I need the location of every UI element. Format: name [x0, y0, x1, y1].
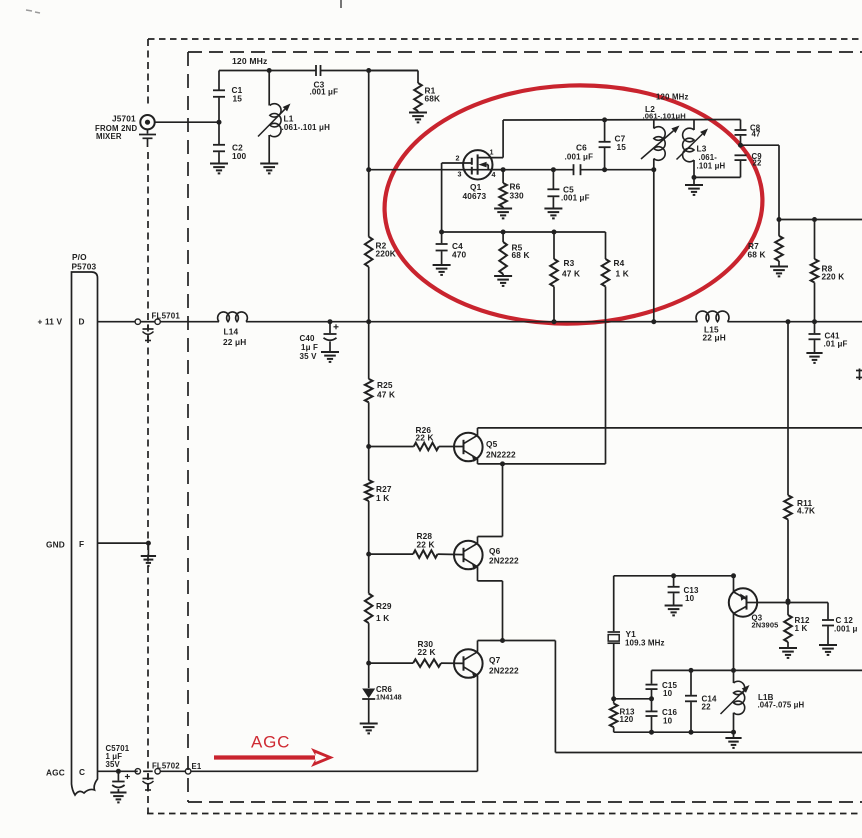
svg-text:C6: C6 — [576, 142, 587, 152]
svg-text:C: C — [79, 767, 85, 777]
svg-text:FL5701: FL5701 — [152, 311, 181, 320]
svg-text:.061-.101 μH: .061-.101 μH — [282, 123, 331, 132]
svg-text:22: 22 — [753, 159, 762, 168]
svg-text:68K: 68K — [425, 94, 441, 104]
svg-text:15: 15 — [617, 142, 627, 152]
svg-text:R3: R3 — [564, 258, 575, 268]
svg-text:L14: L14 — [224, 327, 239, 337]
svg-text:.001 μF: .001 μF — [310, 88, 339, 97]
svg-text:E1: E1 — [192, 762, 202, 771]
svg-text:22: 22 — [702, 702, 712, 711]
svg-text:47: 47 — [752, 130, 761, 139]
svg-text:120 MHz: 120 MHz — [656, 93, 689, 102]
svg-text:AGC: AGC — [251, 733, 290, 752]
svg-text:AGC: AGC — [46, 768, 65, 778]
svg-text:10: 10 — [663, 717, 673, 726]
svg-text:.001 μF: .001 μF — [561, 194, 590, 203]
svg-text:120: 120 — [620, 715, 634, 724]
svg-text:100: 100 — [232, 151, 247, 161]
svg-text:40673: 40673 — [463, 191, 487, 201]
svg-text:1: 1 — [490, 148, 494, 157]
svg-text:220 K: 220 K — [822, 271, 845, 281]
svg-text:F: F — [79, 539, 84, 549]
svg-text:68 K: 68 K — [512, 250, 530, 260]
svg-text:1 K: 1 K — [795, 624, 808, 633]
svg-text:22 μH: 22 μH — [703, 333, 726, 343]
svg-text:Q6: Q6 — [489, 546, 501, 556]
svg-text:2N2222: 2N2222 — [489, 666, 519, 676]
svg-text:.101 μH: .101 μH — [697, 162, 726, 171]
svg-text:L1: L1 — [284, 114, 294, 124]
svg-text:330: 330 — [510, 191, 525, 201]
svg-text:.01 μF: .01 μF — [824, 339, 848, 348]
svg-text:2N2222: 2N2222 — [489, 556, 519, 566]
svg-text:+ 11 V: + 11 V — [38, 316, 63, 326]
svg-text:R29: R29 — [376, 601, 392, 611]
svg-text:120 MHz: 120 MHz — [232, 56, 267, 66]
svg-text:15: 15 — [233, 94, 243, 104]
svg-text:J5701: J5701 — [112, 114, 136, 124]
svg-text:47 K: 47 K — [377, 390, 395, 400]
svg-text:35V: 35V — [106, 760, 121, 769]
svg-text:L3: L3 — [697, 144, 707, 154]
svg-text:.001 μF: .001 μF — [565, 153, 594, 162]
svg-text:Q7: Q7 — [489, 655, 501, 665]
svg-text:P5703: P5703 — [72, 261, 97, 271]
svg-text:Q5: Q5 — [486, 439, 498, 449]
svg-text:FL5702: FL5702 — [152, 761, 180, 770]
svg-text:2: 2 — [456, 154, 460, 163]
svg-text:220K: 220K — [376, 248, 396, 258]
svg-text:R25: R25 — [377, 380, 393, 390]
svg-text:22 K: 22 K — [416, 433, 434, 443]
svg-text:GND: GND — [46, 539, 65, 549]
svg-text:MIXER: MIXER — [96, 132, 122, 141]
svg-text:47 K: 47 K — [562, 269, 580, 279]
svg-text:4: 4 — [492, 170, 496, 179]
svg-text:.061-.101μH: .061-.101μH — [643, 112, 686, 121]
svg-text:1μ F: 1μ F — [301, 343, 318, 352]
svg-text:2N3905: 2N3905 — [752, 620, 779, 629]
svg-text:10: 10 — [663, 689, 673, 698]
svg-text:.001 μ: .001 μ — [834, 624, 858, 633]
svg-text:22 μH: 22 μH — [223, 337, 246, 347]
svg-text:10: 10 — [685, 594, 695, 603]
svg-text:R4: R4 — [614, 258, 625, 268]
svg-text:22 K: 22 K — [418, 647, 436, 657]
svg-text:109.3 MHz: 109.3 MHz — [625, 638, 665, 647]
svg-text:1 K: 1 K — [376, 613, 389, 623]
svg-text:22 K: 22 K — [417, 539, 435, 549]
svg-text:1 K: 1 K — [376, 493, 389, 503]
svg-text:1N4148: 1N4148 — [376, 693, 402, 702]
svg-text:.047-.075 μH: .047-.075 μH — [758, 700, 805, 709]
svg-text:3: 3 — [458, 170, 462, 179]
svg-text:470: 470 — [452, 250, 467, 260]
svg-text:C40: C40 — [300, 334, 316, 343]
svg-text:35 V: 35 V — [300, 352, 318, 361]
svg-text:4.7K: 4.7K — [797, 506, 815, 516]
svg-text:1 K: 1 K — [616, 269, 629, 279]
svg-text:D: D — [79, 317, 85, 327]
svg-text:68 K: 68 K — [748, 250, 766, 260]
svg-text:2N2222: 2N2222 — [486, 450, 516, 460]
